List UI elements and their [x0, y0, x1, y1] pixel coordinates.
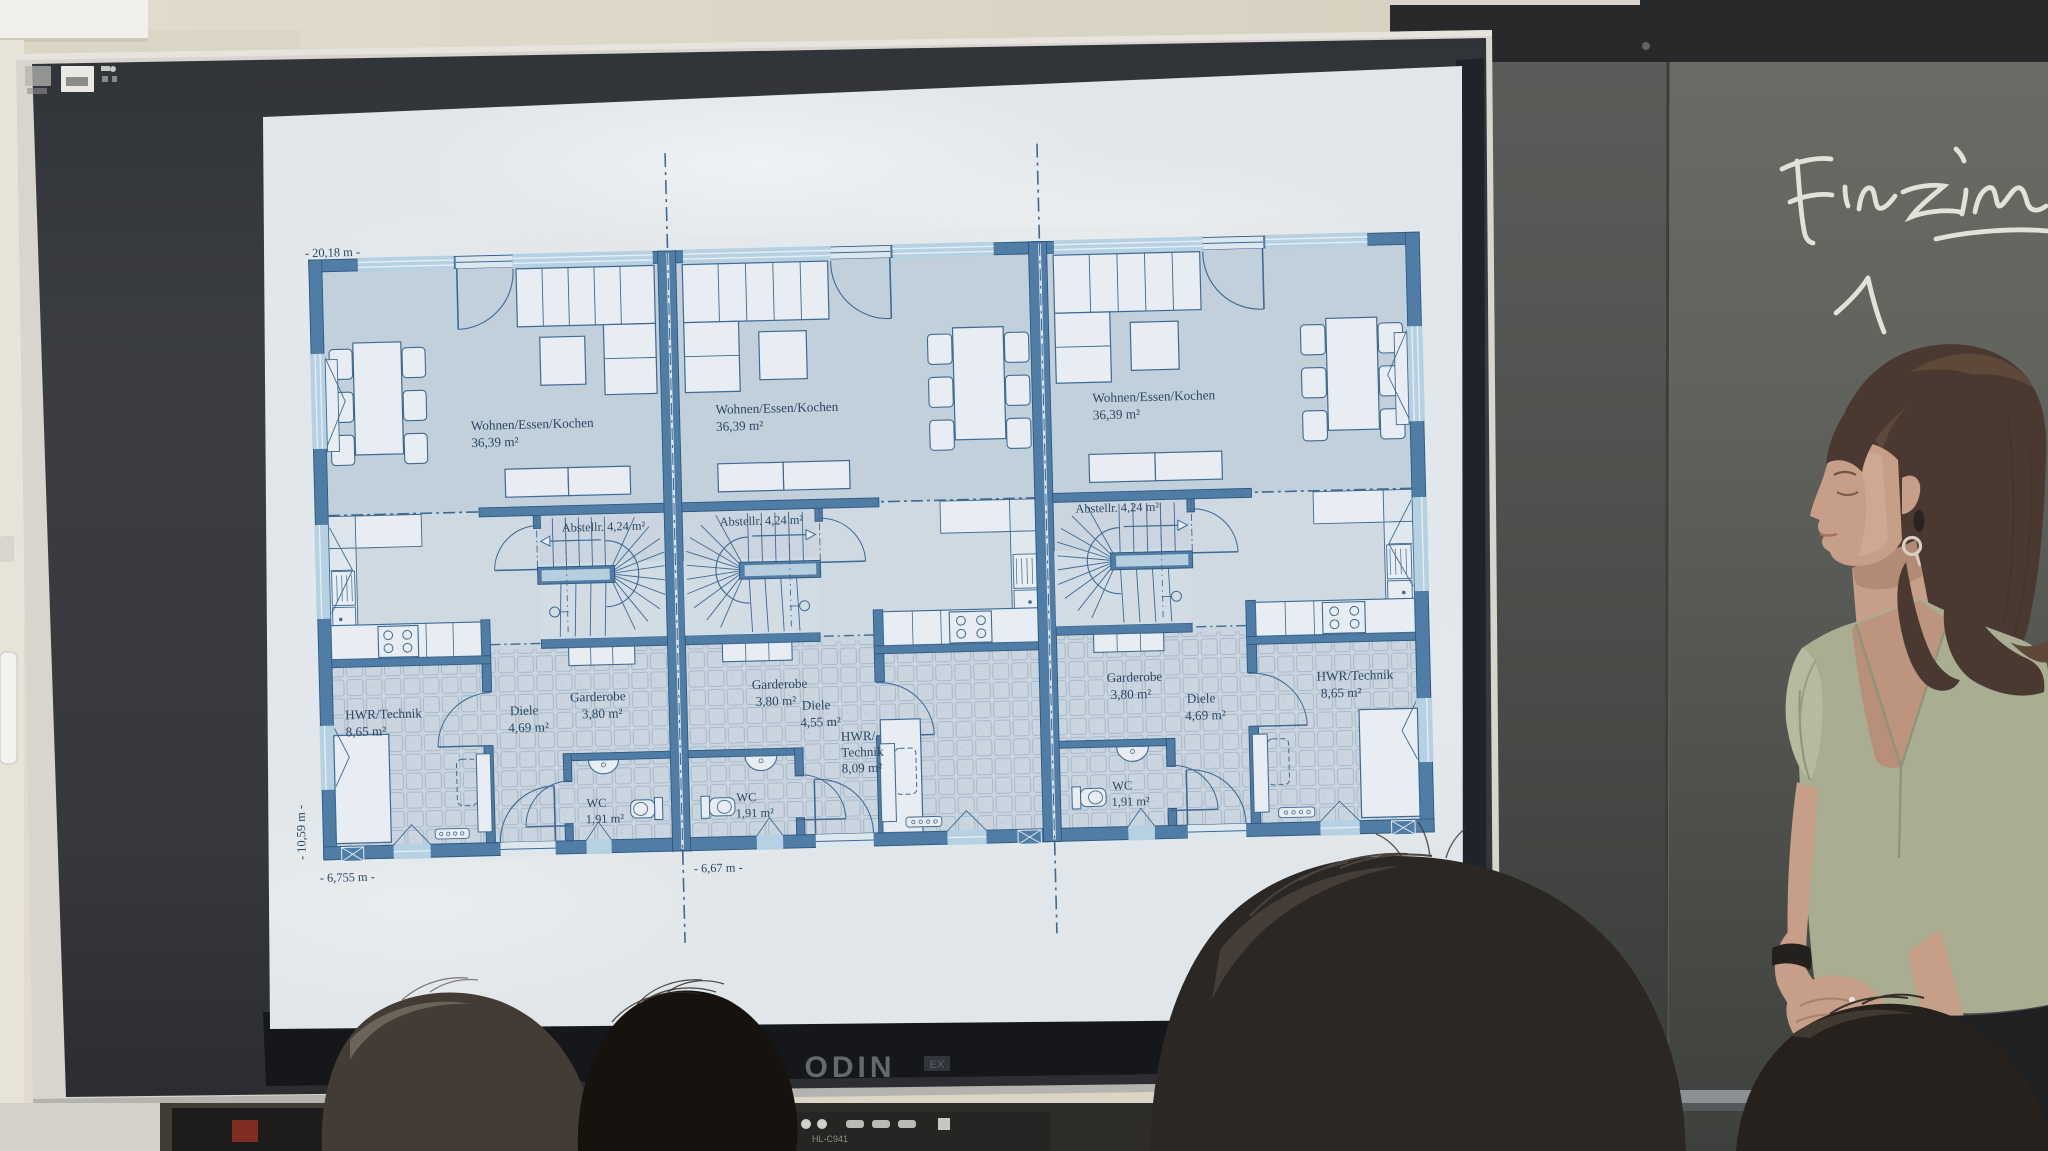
svg-text:Garderobe: Garderobe	[570, 688, 626, 704]
svg-text:Abstellr. 4,24 m²: Abstellr. 4,24 m²	[1075, 500, 1159, 516]
svg-text:HWR/Technik: HWR/Technik	[345, 705, 422, 722]
svg-text:WC: WC	[586, 796, 606, 811]
svg-text:3,80 m²: 3,80 m²	[755, 693, 796, 709]
svg-text:1,91 m²: 1,91 m²	[736, 806, 775, 821]
svg-text:HL-C941: HL-C941	[812, 1134, 848, 1144]
svg-text:Abstellr. 4,24 m²: Abstellr. 4,24 m²	[719, 513, 803, 529]
svg-text:8,65 m²: 8,65 m²	[345, 723, 386, 739]
svg-text:Garderobe: Garderobe	[1106, 669, 1162, 685]
svg-text:ODIN: ODIN	[805, 1051, 896, 1084]
svg-text:Wohnen/Essen/Kochen: Wohnen/Essen/Kochen	[715, 399, 838, 417]
svg-text:EX: EX	[930, 1059, 945, 1071]
svg-text:Wohnen/Essen/Kochen: Wohnen/Essen/Kochen	[1092, 387, 1215, 405]
svg-text:1,91 m²: 1,91 m²	[1111, 794, 1150, 809]
svg-text:HWR/Technik: HWR/Technik	[1316, 667, 1393, 684]
svg-text:3,80 m²: 3,80 m²	[582, 705, 623, 721]
svg-text:Abstellr. 4,24 m²: Abstellr. 4,24 m²	[562, 519, 646, 535]
svg-text:- 6,755 m -: - 6,755 m -	[320, 870, 375, 885]
svg-text:- 10,59 m -: - 10,59 m -	[293, 805, 308, 860]
svg-text:Diele: Diele	[802, 697, 831, 713]
svg-text:8,65 m²: 8,65 m²	[1321, 685, 1362, 701]
svg-text:- 20,18 m -: - 20,18 m -	[305, 245, 360, 260]
svg-text:Diele: Diele	[510, 702, 539, 718]
svg-text:4,69 m²: 4,69 m²	[508, 719, 549, 735]
svg-text:8,09 m²: 8,09 m²	[842, 760, 883, 776]
svg-text:Garderobe: Garderobe	[752, 676, 808, 692]
svg-text:1,91 m²: 1,91 m²	[586, 811, 625, 826]
svg-text:Diele: Diele	[1187, 690, 1216, 706]
svg-text:3,80 m²: 3,80 m²	[1110, 686, 1151, 702]
svg-text:36,39 m²: 36,39 m²	[471, 434, 519, 450]
svg-text:4,55 m²: 4,55 m²	[800, 714, 841, 730]
svg-text:- 6,67 m -: - 6,67 m -	[694, 860, 743, 875]
svg-text:WC: WC	[1112, 778, 1132, 793]
svg-text:Technik: Technik	[841, 744, 884, 760]
svg-text:HWR/: HWR/	[841, 728, 876, 744]
svg-text:4,69 m²: 4,69 m²	[1185, 707, 1226, 723]
svg-text:WC: WC	[736, 790, 756, 805]
svg-text:36,39 m²: 36,39 m²	[1093, 406, 1141, 422]
svg-text:Wohnen/Essen/Kochen: Wohnen/Essen/Kochen	[471, 415, 594, 433]
svg-text:36,39 m²: 36,39 m²	[716, 418, 764, 434]
